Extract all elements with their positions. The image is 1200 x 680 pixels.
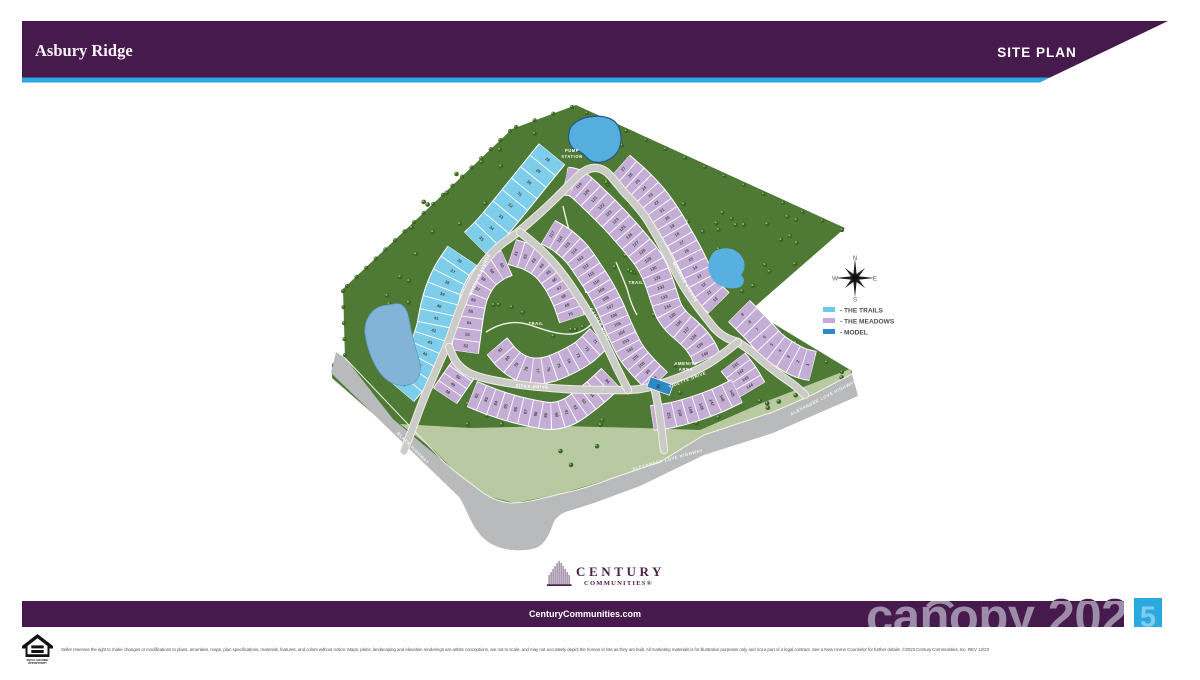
svg-text:AREA: AREA <box>679 367 694 372</box>
svg-text:STATION: STATION <box>561 154 582 159</box>
svg-text:CenturyCommunities.com: CenturyCommunities.com <box>529 609 641 619</box>
svg-text:TRAIL: TRAIL <box>629 280 644 285</box>
svg-text:- MODEL: - MODEL <box>840 330 868 337</box>
svg-text:AMENITY: AMENITY <box>674 361 698 366</box>
svg-text:CENTURY: CENTURY <box>576 564 665 579</box>
svg-text:PUMP: PUMP <box>565 148 579 153</box>
svg-text:E: E <box>873 275 878 282</box>
svg-text:- THE MEADOWS: - THE MEADOWS <box>840 319 895 326</box>
svg-text:S: S <box>853 297 858 304</box>
svg-text:Asbury Ridge: Asbury Ridge <box>35 41 133 60</box>
svg-text:SITE PLAN: SITE PLAN <box>997 45 1077 60</box>
svg-text:- THE TRAILS: - THE TRAILS <box>840 308 883 315</box>
svg-text:5: 5 <box>1140 602 1156 634</box>
svg-text:TRAIL: TRAIL <box>529 321 544 326</box>
svg-text:W: W <box>832 275 839 282</box>
svg-text:N: N <box>853 255 858 262</box>
svg-text:COMMUNITIES®: COMMUNITIES® <box>584 580 653 587</box>
svg-text:Seller reserves the right to m: Seller reserves the right to make change… <box>61 646 989 652</box>
svg-text:OPPORTUNITY: OPPORTUNITY <box>28 661 47 665</box>
